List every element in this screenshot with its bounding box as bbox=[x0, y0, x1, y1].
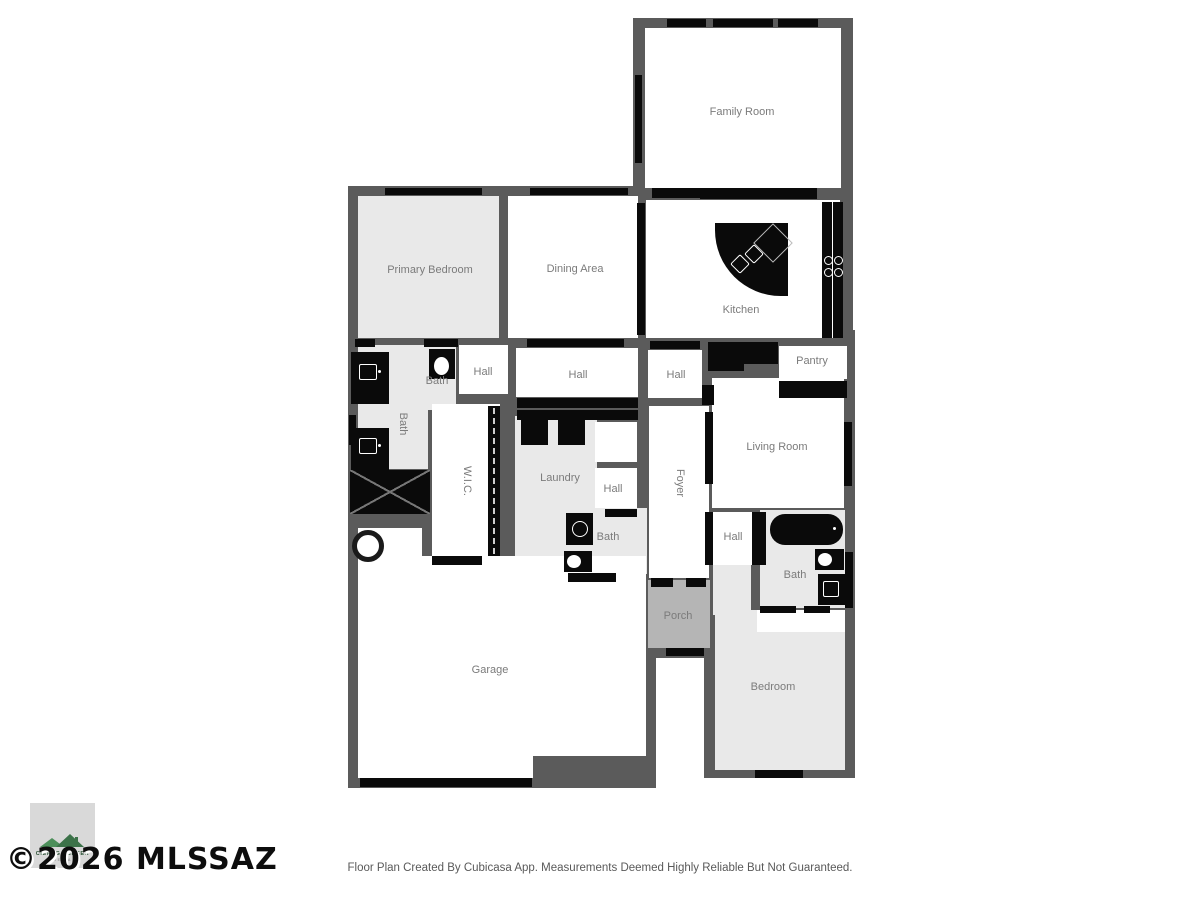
bathtub-icon bbox=[770, 514, 843, 545]
room-bedroom-closet bbox=[757, 610, 845, 632]
kitchen-wall-counter bbox=[822, 202, 843, 338]
door-segment bbox=[527, 339, 624, 347]
label-wic: W.I.C. bbox=[461, 466, 473, 496]
label-family-room: Family Room bbox=[710, 106, 775, 118]
door-segment bbox=[686, 578, 706, 587]
window-segment bbox=[530, 188, 628, 195]
label-bath-small: Bath bbox=[426, 375, 449, 387]
garage-door bbox=[360, 778, 532, 787]
water-heater-icon bbox=[352, 530, 384, 562]
room-bedroom-entry bbox=[713, 565, 751, 615]
room-garage bbox=[358, 556, 646, 756]
label-hall-upper-right: Hall bbox=[667, 369, 686, 381]
window-segment bbox=[755, 770, 803, 778]
window-segment bbox=[713, 19, 773, 27]
door-segment bbox=[605, 509, 637, 517]
door-segment bbox=[666, 648, 704, 656]
label-hall-center: Hall bbox=[569, 369, 588, 381]
window-segment bbox=[635, 75, 642, 163]
vanity-sink-icon bbox=[351, 428, 389, 472]
room-closet-small bbox=[595, 422, 637, 462]
label-hall-upper-left: Hall bbox=[474, 366, 493, 378]
washer-icon bbox=[521, 419, 548, 445]
label-foyer: Foyer bbox=[674, 469, 686, 497]
label-pantry: Pantry bbox=[796, 355, 828, 367]
door-segment bbox=[650, 341, 700, 349]
closet-door-segment bbox=[760, 606, 796, 613]
window-segment bbox=[844, 422, 852, 486]
door-segment bbox=[568, 573, 616, 582]
window-segment bbox=[667, 19, 706, 27]
label-garage: Garage bbox=[472, 664, 509, 676]
room-garage-step bbox=[358, 756, 533, 778]
window-segment bbox=[845, 552, 853, 608]
dryer-icon bbox=[558, 419, 585, 445]
sink-icon bbox=[566, 513, 593, 545]
label-dining-area: Dining Area bbox=[547, 263, 604, 275]
wall-kitchen-dining bbox=[637, 203, 645, 335]
door-segment bbox=[424, 339, 458, 347]
disclaimer-text: Floor Plan Created By Cubicasa App. Meas… bbox=[0, 862, 1200, 874]
window-segment bbox=[705, 412, 713, 484]
door-segment bbox=[432, 556, 482, 565]
toilet-icon bbox=[564, 551, 592, 572]
window-segment bbox=[778, 19, 818, 27]
kitchen-counter bbox=[708, 342, 744, 371]
label-primary-bedroom: Primary Bedroom bbox=[387, 264, 473, 276]
label-bath-guest: Bath bbox=[784, 569, 807, 581]
label-bedroom: Bedroom bbox=[751, 681, 796, 693]
window-segment bbox=[700, 190, 817, 199]
door-segment bbox=[705, 512, 713, 565]
label-bath-primary: Bath bbox=[397, 413, 409, 436]
label-kitchen: Kitchen bbox=[723, 304, 760, 316]
shower-icon bbox=[350, 470, 430, 514]
window-segment bbox=[385, 188, 482, 195]
label-hall-small: Hall bbox=[604, 483, 623, 495]
sink-icon bbox=[818, 574, 845, 605]
closet-door-segment bbox=[804, 606, 830, 613]
closet-strip bbox=[517, 398, 638, 408]
closet-strip bbox=[752, 512, 766, 565]
vanity-sink-icon bbox=[351, 352, 389, 404]
pantry-shelf bbox=[779, 381, 847, 398]
label-bath-center: Bath bbox=[597, 531, 620, 543]
floor-plan-page: Family Room Primary Bedroom Dining Area … bbox=[0, 0, 1200, 900]
toilet-icon bbox=[815, 549, 844, 570]
label-hall-lower-right: Hall bbox=[724, 531, 743, 543]
label-living-room: Living Room bbox=[746, 441, 807, 453]
label-laundry: Laundry bbox=[540, 472, 580, 484]
door-segment bbox=[702, 385, 714, 405]
door-segment bbox=[651, 578, 673, 587]
door-segment bbox=[355, 339, 375, 347]
closet-rod bbox=[488, 406, 500, 556]
label-porch: Porch bbox=[664, 610, 693, 622]
